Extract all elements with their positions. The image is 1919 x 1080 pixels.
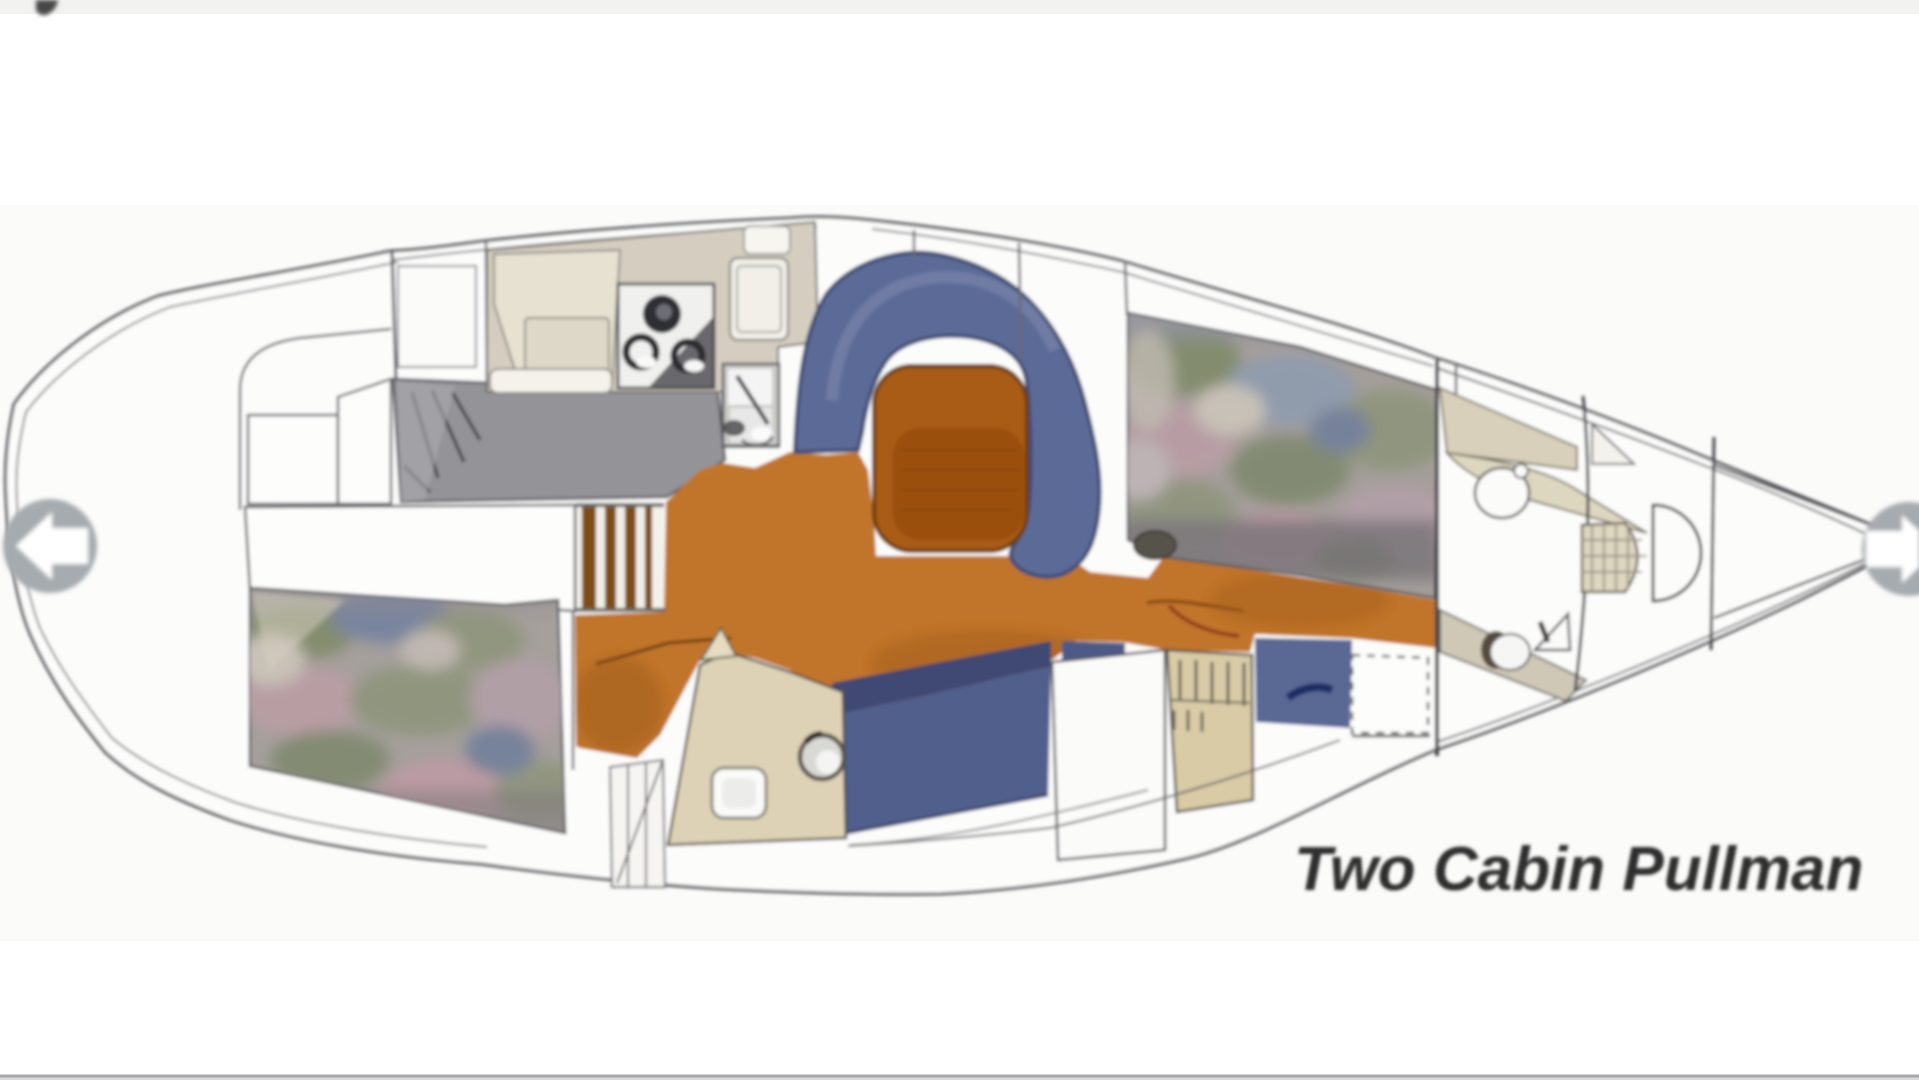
svg-text:Two Cabin Pullman: Two Cabin Pullman: [1294, 835, 1864, 904]
